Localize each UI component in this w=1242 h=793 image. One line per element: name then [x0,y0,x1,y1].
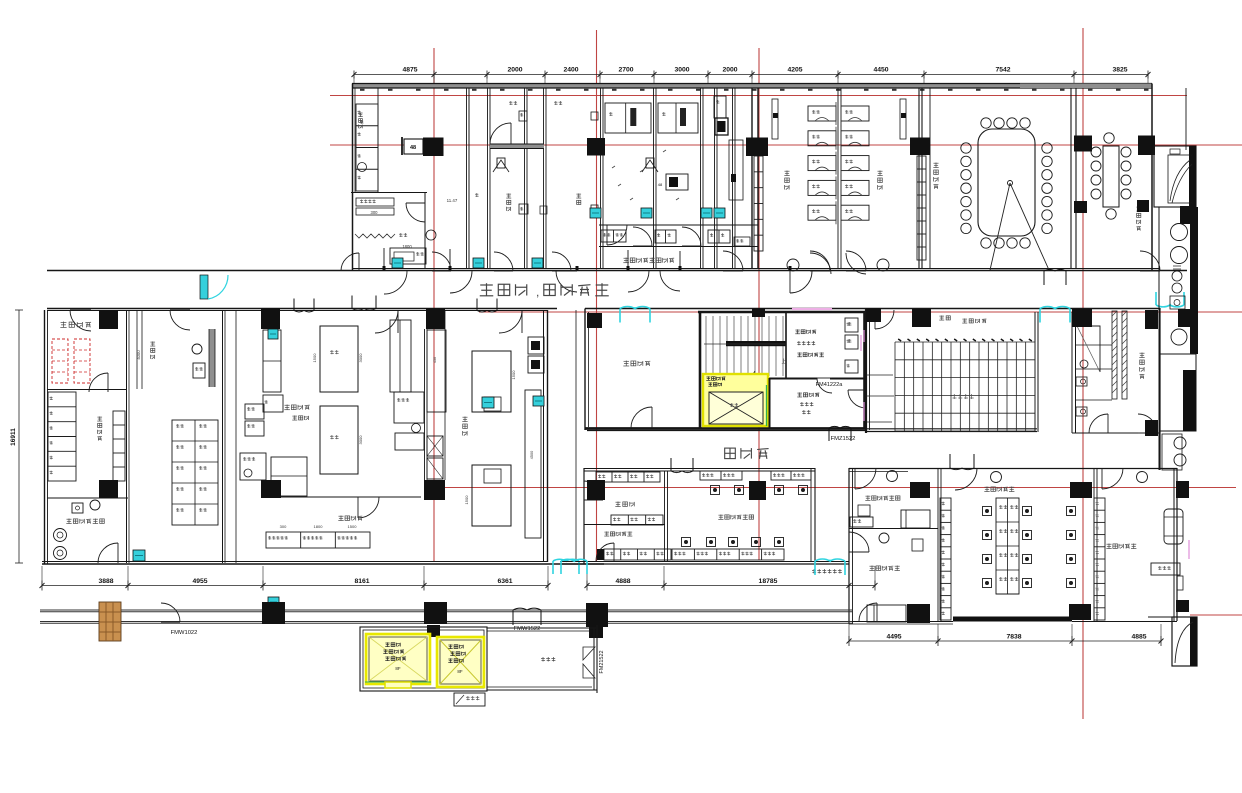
svg-text:3825: 3825 [1112,67,1127,74]
svg-text:,: , [536,285,539,299]
svg-text:8161: 8161 [354,578,369,585]
svg-text:3000: 3000 [358,435,363,445]
svg-text:4205: 4205 [787,67,802,74]
svg-text:4495: 4495 [886,634,901,641]
svg-text:FM21522: FM21522 [599,650,605,673]
svg-text:8F: 8F [457,669,463,674]
svg-text:2000: 2000 [507,67,522,74]
svg-text:18785: 18785 [759,578,778,585]
svg-text:FMW1022: FMW1022 [171,630,198,636]
svg-text:16911: 16911 [10,428,17,446]
svg-text:1500: 1500 [312,353,317,363]
svg-text:1500: 1500 [511,370,516,380]
svg-text:7542: 7542 [995,67,1010,74]
svg-text:2400: 2400 [563,67,578,74]
svg-text:4955: 4955 [192,578,207,585]
svg-text:1500: 1500 [464,495,469,505]
svg-text:300: 300 [371,210,379,215]
svg-text:3888: 3888 [98,578,113,585]
svg-text:11.47: 11.47 [447,198,458,203]
svg-text:4500: 4500 [530,451,534,459]
svg-text:3000: 3000 [674,67,689,74]
svg-text:4450: 4450 [873,67,888,74]
svg-text:4875: 4875 [402,67,417,74]
svg-text:1800: 1800 [314,524,324,529]
svg-text:FMZ1522: FMZ1522 [831,436,856,442]
svg-text:2700: 2700 [618,67,633,74]
svg-text:300: 300 [280,524,287,529]
svg-text:2000: 2000 [722,67,737,74]
svg-text:4000: 4000 [136,350,141,360]
svg-text:48: 48 [410,145,416,151]
svg-text:3000: 3000 [358,353,363,363]
svg-text:48: 48 [658,182,663,187]
svg-text:FM41222a: FM41222a [816,382,844,388]
svg-text:450: 450 [433,357,437,363]
svg-text:1500: 1500 [348,524,358,529]
svg-text:8F: 8F [395,666,401,671]
svg-text:4885: 4885 [1131,634,1146,641]
svg-text:上: 上 [781,358,786,365]
svg-text:4888: 4888 [615,578,630,585]
svg-text:6361: 6361 [497,578,512,585]
svg-text:7838: 7838 [1006,634,1021,641]
